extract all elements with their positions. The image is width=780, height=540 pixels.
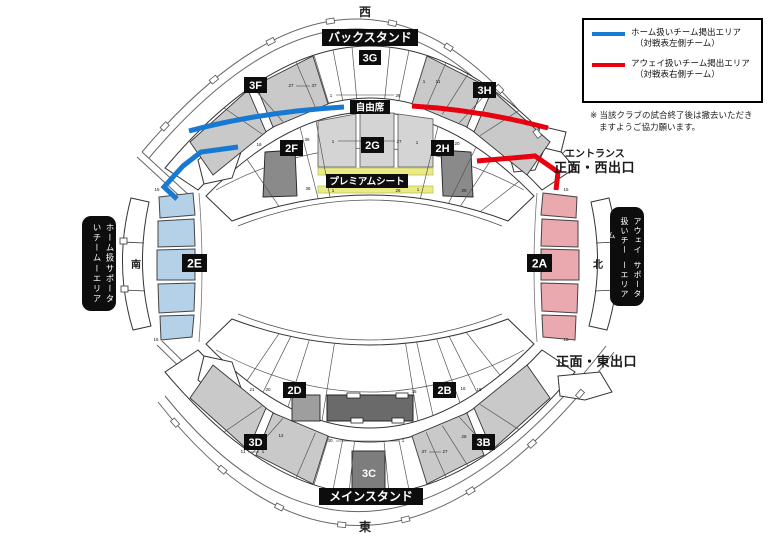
seat-number-tick: 21 bbox=[249, 387, 255, 392]
away-supporter-line2: サポーターエリア bbox=[610, 259, 644, 300]
seat-number-tick: 35 bbox=[411, 389, 417, 394]
premium-row-upper bbox=[318, 168, 433, 175]
away-supporter-line1: アウェイ扱いチーム bbox=[610, 213, 644, 259]
gate-square bbox=[337, 522, 345, 528]
compass-north: 北 bbox=[593, 258, 603, 271]
premium-label: プレミアムシート bbox=[329, 176, 404, 188]
away-line-swatch bbox=[592, 63, 625, 67]
seat-number-tick: 20 bbox=[265, 387, 271, 392]
seat-number-tick: 27 bbox=[288, 83, 294, 88]
home-block bbox=[158, 283, 195, 313]
gate-square bbox=[388, 20, 397, 27]
seat-number-tick: 15 bbox=[153, 337, 159, 342]
main-stand-label: メインスタンド bbox=[329, 490, 413, 504]
seat-number-tick: 12 bbox=[278, 433, 284, 438]
compass-south: 南 bbox=[131, 258, 141, 271]
legend-away-sub: （対戦表右側チーム） bbox=[631, 69, 750, 80]
home-block bbox=[160, 315, 194, 340]
legend-home-row: ホーム扱いチーム掲出エリア （対戦表左側チーム） bbox=[592, 27, 755, 49]
seat-number-tick: 36 bbox=[304, 137, 310, 142]
seat-number-tick: 15 bbox=[154, 187, 160, 192]
dark-box-2h bbox=[441, 150, 473, 197]
home-supporter-area-label: ホーム扱いチーム サポーターエリア bbox=[82, 216, 116, 311]
seat-number-tick: 37 bbox=[311, 83, 317, 88]
labels: バックスタンド メインスタンド 自由席 プレミアムシート 3G 3F 3H 2F… bbox=[131, 29, 603, 505]
center-dark-block bbox=[327, 395, 413, 421]
section-2a-label: 2A bbox=[532, 257, 548, 271]
south-gate bbox=[120, 238, 127, 244]
home-line-swatch bbox=[592, 32, 625, 36]
legend-box: ホーム扱いチーム掲出エリア （対戦表左側チーム） アウェイ扱いチーム掲出エリア … bbox=[582, 18, 763, 103]
section-2b-label: 2B bbox=[437, 385, 451, 397]
section-2e-label: 2E bbox=[187, 257, 202, 271]
section-3d-label: 3D bbox=[248, 437, 262, 449]
seat-number-tick: 26 bbox=[395, 93, 401, 98]
west-exit-label: 正面・西出口 bbox=[554, 157, 635, 176]
seat-number-tick: 20 bbox=[461, 188, 467, 193]
section-3b-label: 3B bbox=[476, 437, 490, 449]
south-gate bbox=[121, 286, 128, 292]
block-notch bbox=[396, 393, 408, 398]
removal-note: ※ 当該クラブの試合終了後は撤去いただき ますようご協力願います。 bbox=[590, 109, 753, 133]
seat-number-tick: 37 bbox=[421, 449, 427, 454]
section-2d-label: 2D bbox=[287, 385, 301, 397]
block-notch bbox=[392, 418, 404, 423]
seat-number-tick: 27 bbox=[442, 449, 448, 454]
legend-home-sub: （対戦表左側チーム） bbox=[631, 38, 741, 49]
gate-square bbox=[444, 43, 453, 51]
compass-west: 西 bbox=[359, 3, 371, 20]
section-2h-label: 2H bbox=[435, 143, 449, 155]
seat-number-tick: 28 bbox=[461, 434, 467, 439]
seat-number-tick: 11 bbox=[436, 79, 441, 84]
note-line1: ※ 当該クラブの試合終了後は撤去いただき bbox=[590, 109, 753, 121]
away-block bbox=[542, 315, 576, 340]
section-3c-label: 3C bbox=[362, 468, 376, 480]
legend-home-label: ホーム扱いチーム掲出エリア bbox=[631, 27, 741, 38]
gate-square bbox=[275, 503, 284, 511]
seat-number-tick: 16 bbox=[256, 142, 262, 147]
free-seating-label: 自由席 bbox=[356, 102, 385, 114]
east-exit-label: 正面・東出口 bbox=[556, 351, 637, 370]
note-line2: ますようご協力願います。 bbox=[590, 121, 753, 133]
away-block bbox=[541, 283, 578, 313]
section-3f-label: 3F bbox=[249, 80, 262, 92]
section-3g-label: 3G bbox=[363, 53, 378, 65]
gate-square bbox=[401, 516, 410, 523]
seat-number-tick: 15 bbox=[563, 187, 569, 192]
seat-number-tick: 27 bbox=[396, 139, 402, 144]
home-supporter-line2: サポーターエリア bbox=[82, 264, 116, 306]
legend-away-label: アウェイ扱いチーム掲出エリア bbox=[631, 58, 750, 69]
away-block bbox=[541, 193, 577, 218]
block-notch bbox=[347, 393, 360, 398]
seat-number-tick: 20 bbox=[454, 141, 460, 146]
seat-number-tick: 15 bbox=[563, 337, 569, 342]
seat-number-tick: 26 bbox=[395, 188, 401, 193]
seat-number-tick: 16 bbox=[460, 386, 466, 391]
home-supporter-line1: ホーム扱いチーム bbox=[82, 222, 116, 264]
section-2g-col bbox=[318, 114, 356, 167]
gray-box-2d bbox=[292, 395, 320, 421]
section-2f-label: 2F bbox=[285, 143, 298, 155]
gate-square bbox=[466, 487, 475, 495]
seat-number-tick: 30 bbox=[327, 438, 333, 443]
corner-bottom-right bbox=[558, 372, 612, 400]
gate-square bbox=[266, 37, 275, 45]
home-block bbox=[158, 219, 195, 247]
away-supporter-area-label: アウェイ扱いチーム サポーターエリア bbox=[610, 207, 644, 306]
away-block bbox=[541, 219, 578, 247]
gate-square bbox=[326, 18, 335, 24]
block-notch bbox=[351, 418, 363, 423]
seat-number-tick: 15 bbox=[476, 387, 482, 392]
compass-east: 東 bbox=[359, 518, 371, 535]
section-3h-label: 3H bbox=[477, 85, 491, 97]
stadium-seating-map: 2737111126127361612012636120151515153011… bbox=[0, 0, 780, 540]
legend-away-row: アウェイ扱いチーム掲出エリア （対戦表右側チーム） bbox=[592, 58, 755, 80]
section-2g-label: 2G bbox=[365, 140, 380, 152]
seat-number-tick: 36 bbox=[305, 186, 311, 191]
back-stand-label: バックスタンド bbox=[328, 31, 412, 45]
